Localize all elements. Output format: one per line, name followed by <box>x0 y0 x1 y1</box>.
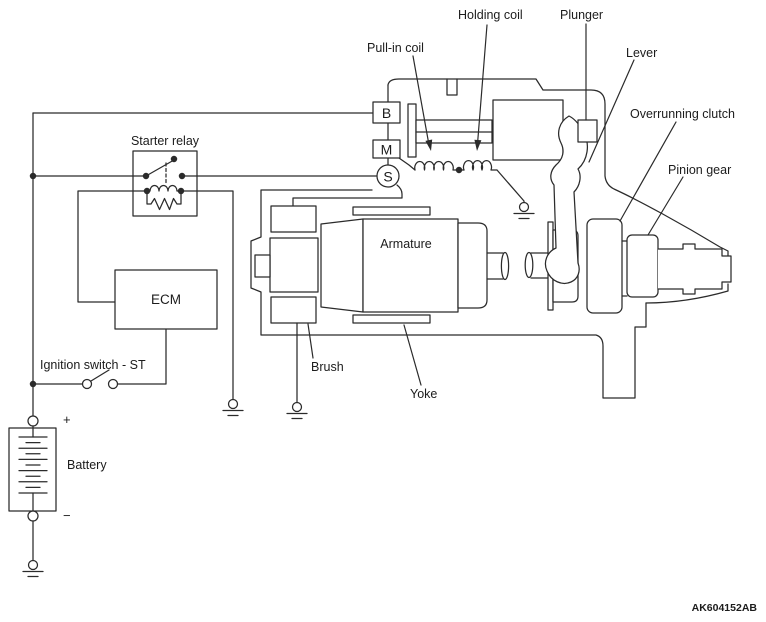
pinion-body <box>627 235 658 297</box>
battery-plates-short <box>26 443 40 488</box>
bearing-box <box>270 238 318 292</box>
starter-circuit-figure: Starter relay ECM Ignition switch - ST +… <box>0 0 766 622</box>
solenoid-body <box>493 100 563 160</box>
brush-leader-line <box>308 324 313 358</box>
battery-negative-terminal <box>28 511 38 521</box>
yoke-leader-line <box>404 325 421 385</box>
pull-in-coil-arrowhead <box>425 140 432 152</box>
ecm-label: ECM <box>151 292 181 307</box>
switch-contact <box>83 380 92 389</box>
end-cap-stub <box>255 255 270 277</box>
figure-code: AK604152AB <box>692 602 758 614</box>
coil-ground-lead <box>497 170 524 203</box>
holding-coil-label: Holding coil <box>458 8 523 22</box>
output-shaft <box>658 244 731 294</box>
pull-in-coil-label: Pull-in coil <box>367 41 424 55</box>
relay-coil-terminal-dot <box>178 188 183 193</box>
battery-minus-sign: − <box>63 508 71 523</box>
ecm-to-switch-wire <box>118 329 167 384</box>
ecm: ECM <box>115 270 217 329</box>
field-coil-bar-bottom <box>353 315 430 323</box>
pinion-gear-label: Pinion gear <box>668 163 731 177</box>
clutch-neck <box>622 241 627 296</box>
lever-label: Lever <box>626 46 657 60</box>
armature-label: Armature <box>380 237 431 251</box>
relay-coil-symbol <box>147 186 181 192</box>
relay-coil-terminal-dot <box>144 188 149 193</box>
holding-coil-arrowhead <box>474 140 481 151</box>
terminal-m-label: M <box>381 142 393 158</box>
lever-leader-line <box>589 60 634 162</box>
relay-contact-dot <box>179 173 184 178</box>
ground-symbol-brush <box>287 403 307 419</box>
coil-junction-dot <box>456 167 461 172</box>
armature-assembly: Armature <box>255 185 548 403</box>
relay-resistor-symbol <box>147 191 181 210</box>
battery-plus-sign: + <box>63 412 71 427</box>
solenoid: B M S <box>373 85 563 203</box>
armature-left-section <box>321 219 363 312</box>
armature-end-cap <box>458 223 487 308</box>
shaft-break-loop <box>501 253 508 280</box>
yoke-label: Yoke <box>410 387 437 401</box>
ground-symbol-relay-coil <box>223 400 243 416</box>
brush-label: Brush <box>311 360 344 374</box>
brush-box-top <box>271 206 316 232</box>
ground-symbol-holding-coil <box>514 203 534 219</box>
brush-box-bottom <box>271 297 316 323</box>
plunger-end <box>578 120 597 142</box>
m-to-coil-wire <box>399 158 415 170</box>
relay-contact-dot <box>143 173 148 178</box>
solenoid-core-vertical <box>408 104 416 157</box>
holding-coil-symbol <box>464 161 498 170</box>
switch-contact <box>109 380 118 389</box>
relay-arm-dot <box>171 156 176 161</box>
ground-symbol-battery <box>23 561 43 577</box>
plunger-label: Plunger <box>560 8 603 22</box>
starter-relay: Starter relay <box>131 134 200 216</box>
armature-body <box>363 219 458 312</box>
overrunning-clutch-label: Overrunning clutch <box>630 107 735 121</box>
battery: + − Battery <box>9 412 107 561</box>
junction-dot <box>30 381 35 386</box>
callouts <box>308 24 683 385</box>
starter-relay-label: Starter relay <box>131 134 200 148</box>
ignition-switch-label: Ignition switch - ST <box>40 358 146 372</box>
s-to-brush-wire <box>293 185 402 206</box>
clutch-drum <box>587 219 622 313</box>
relay-arm <box>146 160 174 176</box>
battery-label: Battery <box>67 458 107 472</box>
relay-box <box>133 151 197 216</box>
armature-shaft <box>487 253 503 279</box>
terminal-b-label: B <box>382 105 391 121</box>
terminal-s-label: S <box>383 169 392 185</box>
starter-circuit-diagram: Starter relay ECM Ignition switch - ST +… <box>0 0 766 622</box>
battery-positive-terminal <box>28 416 38 426</box>
field-coil-bar-top <box>353 207 430 215</box>
pinion-gear-leader-line <box>648 177 683 235</box>
junction-dot <box>30 173 35 178</box>
housing-top-notch <box>447 79 457 95</box>
shaft-break-loop <box>525 253 533 278</box>
